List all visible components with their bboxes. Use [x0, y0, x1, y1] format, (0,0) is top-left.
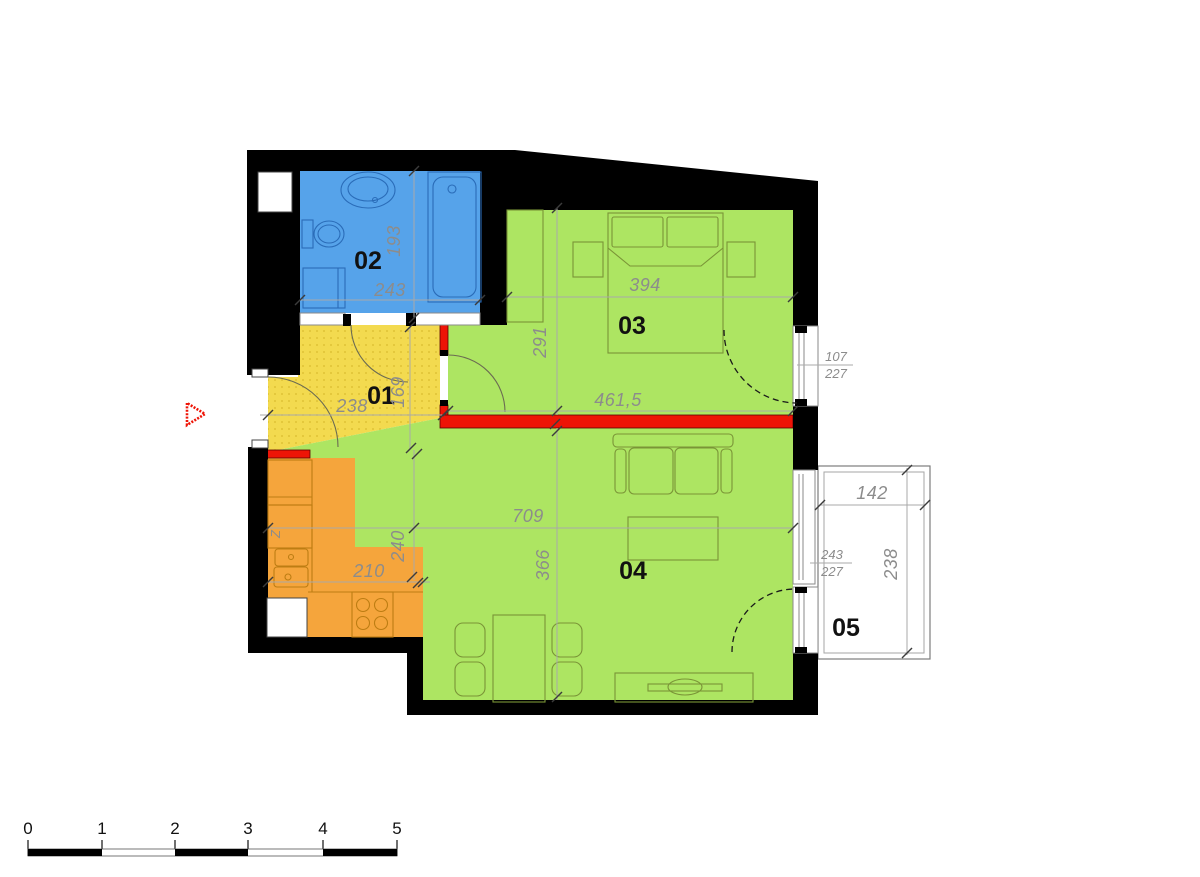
dim-bed-height: 291 [530, 326, 550, 359]
room-03-label: 03 [618, 312, 646, 340]
entry-jamb-top [252, 369, 268, 377]
wall-bottom [407, 700, 818, 715]
shaft-notch-top-left [258, 172, 292, 212]
scale-label-2: 2 [170, 819, 179, 838]
wall-right-middle [793, 406, 818, 470]
scale-label-5: 5 [392, 819, 401, 838]
dim-hall-height: 169 [388, 376, 408, 408]
bath-wall-left-seg [300, 313, 345, 325]
dim-bed-width: 394 [629, 275, 661, 295]
bath-wall-right-seg [412, 313, 480, 325]
partition-bedroom-living [440, 415, 793, 428]
dim-living-height: 366 [533, 549, 553, 581]
dim-balcony-window-w: 243 [820, 547, 843, 562]
shaft-notch-bottom-left [267, 598, 307, 637]
dim-living-width: 709 [512, 506, 544, 526]
bedroom-door-jamb-bottom [440, 400, 448, 406]
dim-bath-width: 243 [373, 280, 406, 300]
dim-hall-width: 238 [335, 396, 368, 416]
window-units [793, 326, 818, 653]
scale-label-4: 4 [318, 819, 327, 838]
dim-bed-width-lower: 461,5 [594, 390, 642, 410]
dim-kitchen-width: 210 [352, 561, 385, 581]
living-window-unit [793, 470, 815, 584]
partition-kitchen-strip [267, 450, 310, 458]
scale-bar: 0 1 2 3 4 5 [23, 819, 401, 856]
entrance-arrow-icon [187, 403, 205, 425]
room-05-label: 05 [832, 614, 860, 642]
wall-kitchen-bottom [248, 637, 423, 653]
floor-plan-page: 02 243 193 01 238 169 03 394 291 461,5 1… [0, 0, 1200, 877]
scale-label-0: 0 [23, 819, 32, 838]
living-balcony-door-unit [793, 587, 818, 653]
dim-bath-height: 193 [384, 225, 404, 257]
scale-label-3: 3 [243, 819, 252, 838]
entry-jamb-bottom [252, 440, 268, 448]
dim-bed-balcony-door-h: 227 [824, 366, 847, 381]
scale-seg-2-3 [175, 849, 248, 856]
scale-label-1: 1 [97, 819, 106, 838]
dim-kitchen-height: 240 [388, 530, 408, 563]
room-fills [268, 171, 793, 703]
bedroom-balcony-door-unit [793, 326, 818, 406]
scale-seg-4-5 [323, 849, 397, 856]
bedroom-door-jamb-top [440, 350, 448, 356]
dim-balcony-height: 238 [881, 548, 901, 581]
wall-right-upper [793, 181, 818, 326]
dim-bed-balcony-door-w: 107 [825, 349, 847, 364]
floor-plan-canvas: 02 243 193 01 238 169 03 394 291 461,5 1… [0, 0, 1200, 877]
room-02-label: 02 [354, 247, 382, 275]
dim-balcony-width: 142 [856, 483, 888, 503]
kitchen-appliance-label: Z [268, 529, 283, 539]
wall-right-lower [793, 653, 818, 715]
wall-left-lower [248, 447, 268, 653]
dim-balcony-window-h: 227 [820, 564, 843, 579]
scale-seg-0-1 [28, 849, 102, 856]
bath-door-jamb-left [343, 314, 351, 326]
room-04-label: 04 [619, 557, 647, 585]
